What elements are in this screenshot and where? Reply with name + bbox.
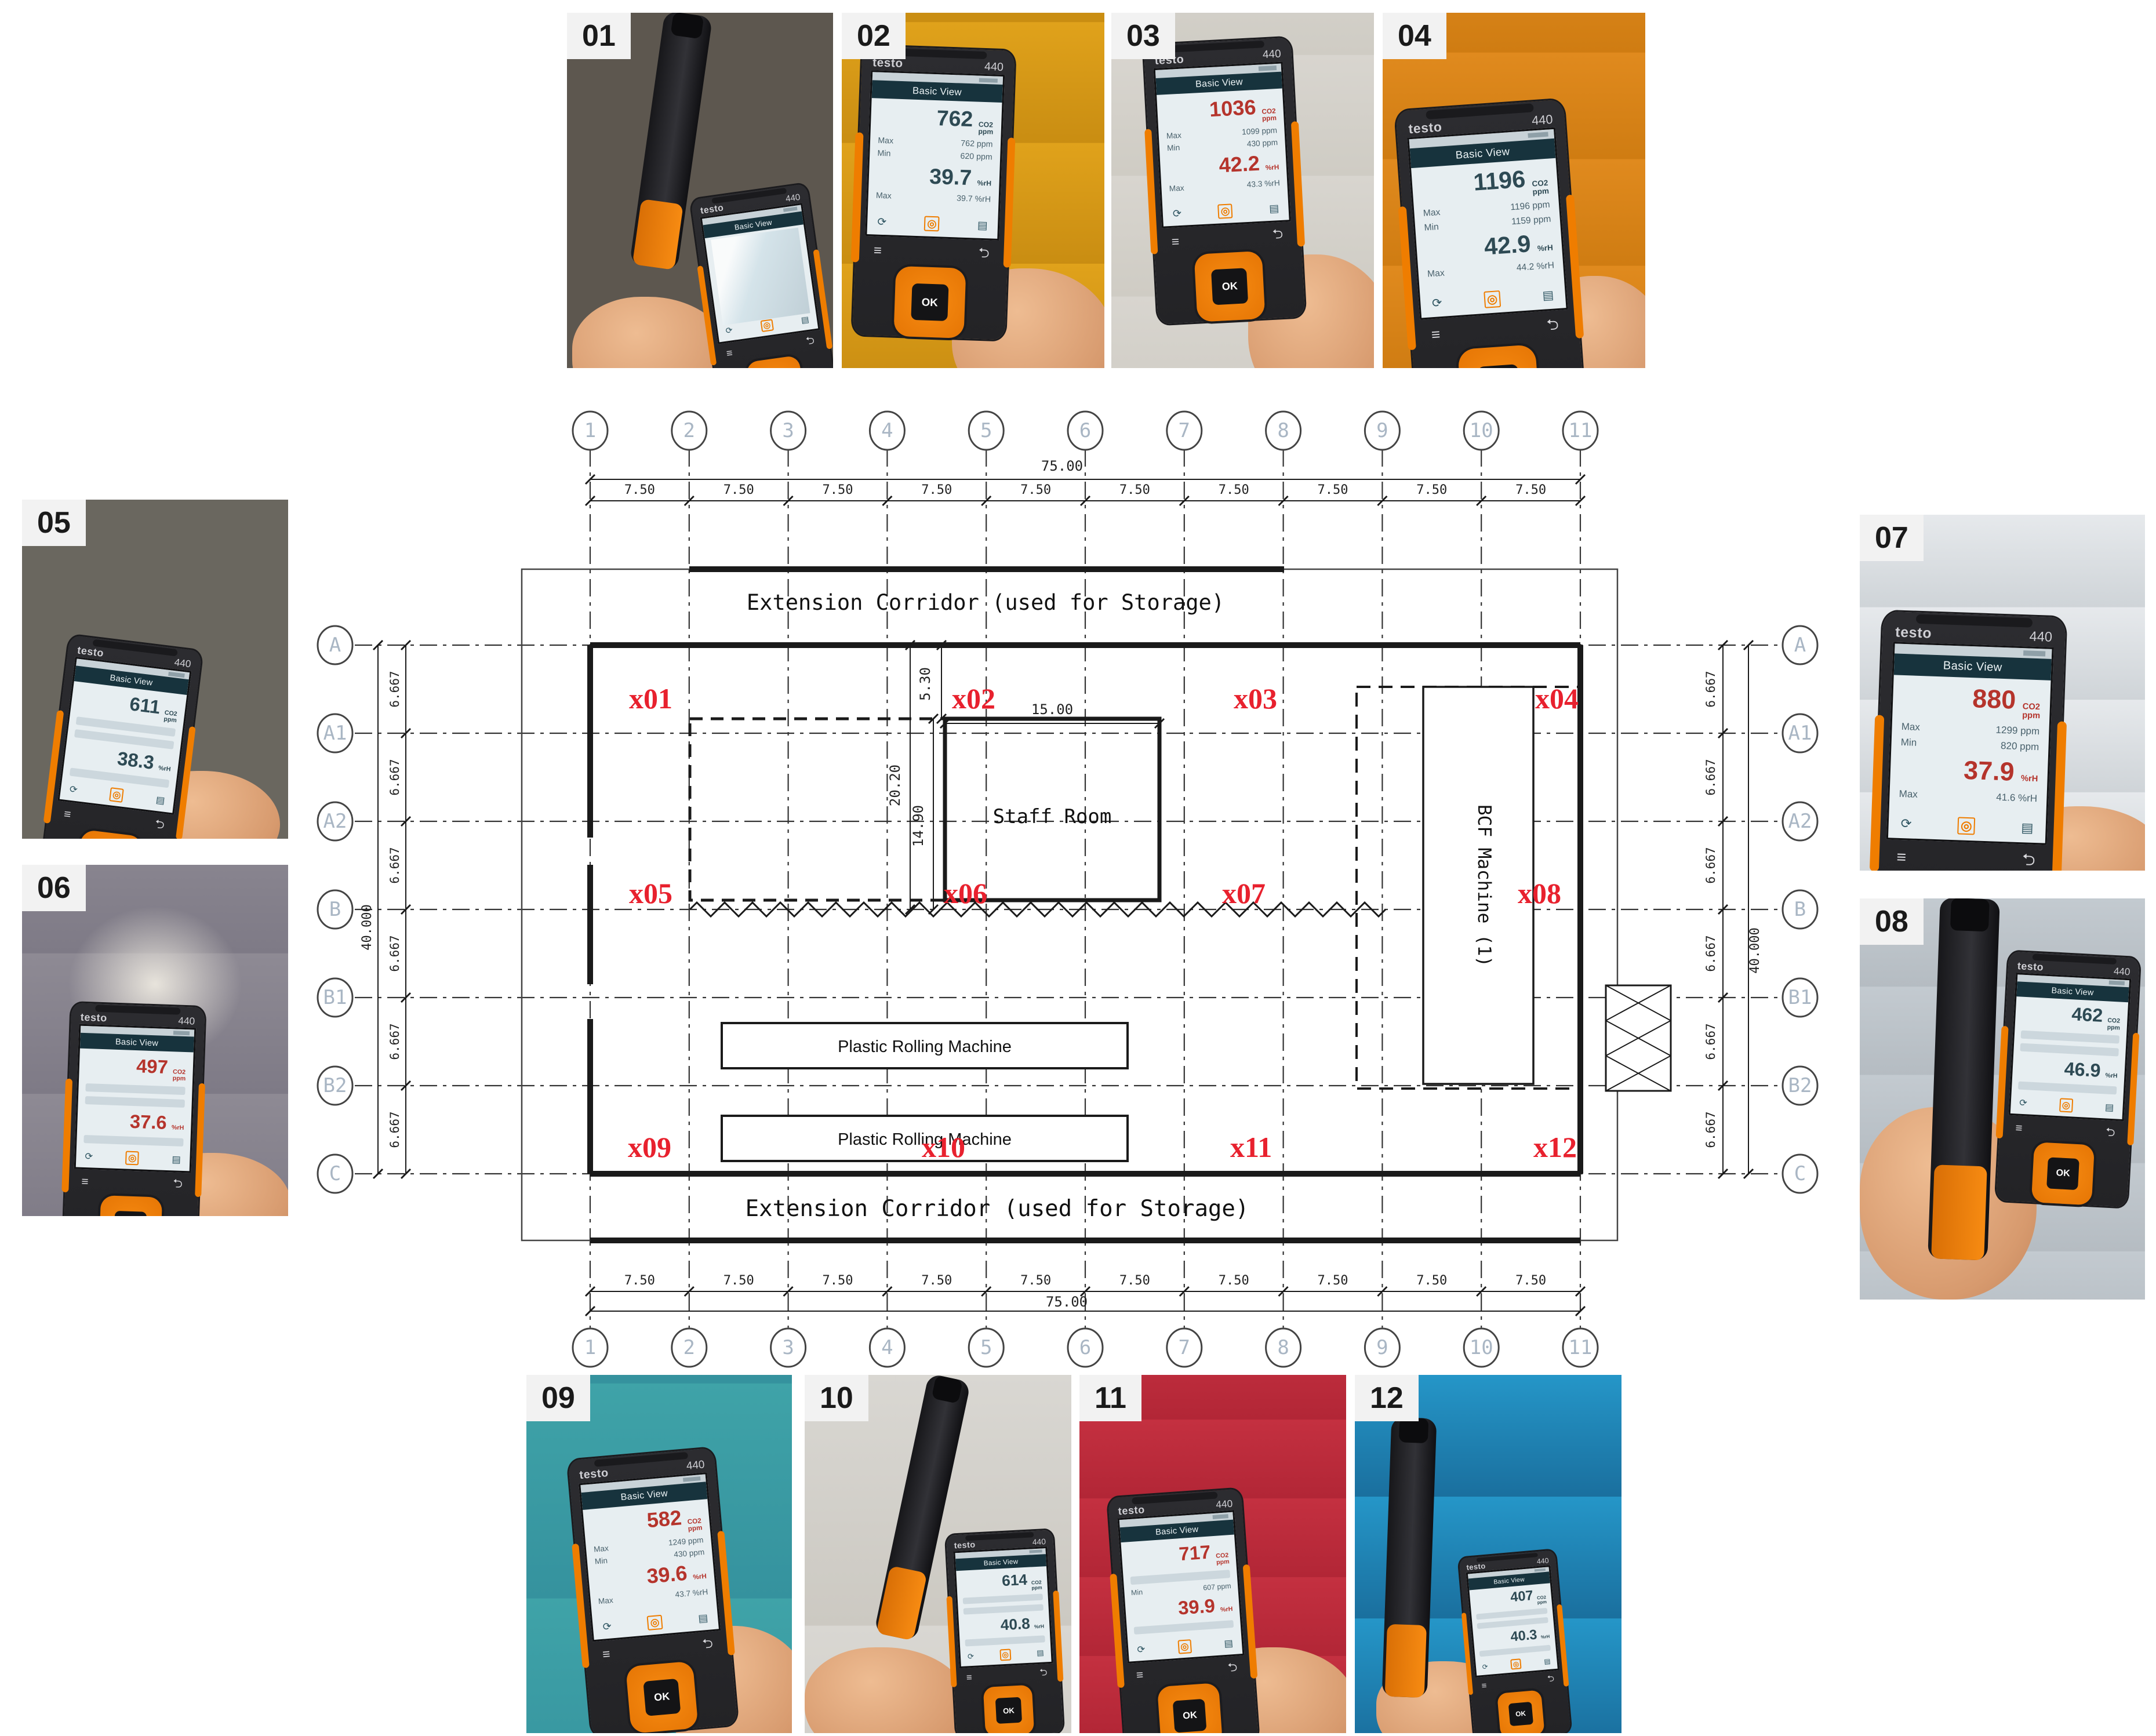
- measurement-point-label: x11: [1230, 1131, 1272, 1163]
- co2-max-value: 1249 ppm: [668, 1535, 704, 1547]
- cycle-icon: ⟳: [968, 1652, 975, 1662]
- column-bubble-top-label: 5: [980, 419, 992, 442]
- dim-staff-depth: 14.90: [910, 805, 926, 847]
- device-brand-label: testo: [1408, 119, 1442, 137]
- testo-440-device: testo440Basic View762CO2 ppmMax762 ppmMi…: [853, 46, 1015, 340]
- min-label: Min: [1900, 737, 1917, 749]
- column-bubble-bottom-label: 5: [980, 1336, 992, 1359]
- co2-min-value: 820 ppm: [2000, 740, 2039, 753]
- column-bubble-bottom-label: 4: [881, 1336, 893, 1359]
- menu-icon: ≡: [2015, 1122, 2023, 1136]
- humidity-max-row: Max39.7 %rH: [876, 191, 991, 205]
- co2-reading: 614CO2 ppm: [962, 1570, 1042, 1595]
- photo-number-label: 04: [1383, 13, 1446, 59]
- device-model-label: 440: [1032, 1537, 1046, 1546]
- ok-button: OK: [1508, 1702, 1533, 1727]
- column-bubble-top-label: 3: [782, 419, 794, 442]
- ok-button: OK: [1173, 1698, 1208, 1733]
- co2-value: 614: [1001, 1571, 1027, 1590]
- site-photo-04: 04 testo440Basic View1196CO2 ppmMax1196 …: [1383, 13, 1645, 368]
- testo-440-device: testo440Basic View407CO2 ppm40.3%rH⟳◎▤≡⮌…: [1459, 1550, 1570, 1733]
- device-brand-label: testo: [81, 1012, 108, 1025]
- menu-icon: ≡: [602, 1646, 611, 1662]
- dim-bay-top: 7.50: [1416, 483, 1447, 497]
- battery-icon: [783, 206, 798, 212]
- site-photo-05: 05 testo440Basic View611CO2 ppm38.3%rH⟳◎…: [22, 500, 288, 839]
- dim-total-top: 75.00: [1041, 458, 1083, 474]
- dpad-pad: OK: [99, 1196, 162, 1216]
- max-label: Max: [1166, 131, 1182, 140]
- column-bubble-top-label: 6: [1079, 419, 1091, 442]
- co2-unit: CO2 ppm: [1216, 1552, 1230, 1566]
- target-icon: ◎: [999, 1648, 1011, 1661]
- screen-body: 497CO2 ppm37.6%rH⟳◎▤: [76, 1049, 194, 1171]
- device-dpad: OK: [1155, 249, 1305, 325]
- photo-number-label: 11: [1079, 1375, 1141, 1421]
- co2-value: 880: [1972, 683, 2016, 715]
- photo-number-label: 01: [567, 13, 631, 59]
- site-photo-11: 11 testo440Basic View717CO2 ppmMin607 pp…: [1079, 1375, 1346, 1733]
- dim-bay-bottom: 7.50: [1318, 1273, 1348, 1288]
- photo-number-label: 08: [1860, 898, 1924, 945]
- device-brand-label: testo: [1118, 1504, 1145, 1518]
- blurred-row: [85, 1097, 185, 1108]
- device-dpad: OK: [63, 1195, 198, 1216]
- column-bubble-bottom-label: 11: [1569, 1336, 1593, 1359]
- max-label: Max: [1901, 721, 1920, 733]
- back-icon: ⮌: [1546, 314, 1559, 340]
- dim-row-left: 6.667: [388, 1111, 402, 1148]
- measurement-point-label: x05: [629, 877, 672, 909]
- device-model-label: 440: [2029, 629, 2052, 646]
- humidity-max-value: 44.2 %rH: [1516, 261, 1554, 274]
- device-screen: Basic View497CO2 ppm37.6%rH⟳◎▤: [74, 1024, 196, 1173]
- menu-icon: ≡: [1171, 234, 1180, 250]
- co2-max-row: Max762 ppm: [878, 136, 993, 150]
- dim-row-left: 6.667: [388, 1023, 402, 1060]
- co2-reading: 717CO2 ppm: [1128, 1540, 1230, 1572]
- co2-value: 611: [129, 693, 162, 718]
- min-label: Min: [1131, 1588, 1143, 1596]
- blurred-row: [1134, 1619, 1234, 1635]
- min-label: Min: [1167, 143, 1180, 152]
- cycle-icon: ⟳: [602, 1620, 612, 1633]
- target-icon: ◎: [2059, 1098, 2073, 1112]
- co2-value: 407: [1510, 1588, 1534, 1605]
- co2-min-value: 1159 ppm: [1511, 214, 1551, 228]
- site-photo-02: 02 testo440Basic View762CO2 ppmMax762 pp…: [842, 13, 1104, 368]
- site-photo-10: 10 testo440Basic View614CO2 ppm40.8%rH⟳◎…: [805, 1375, 1071, 1733]
- co2-unit: CO2 ppm: [173, 1069, 186, 1082]
- save-icon: ▤: [2020, 820, 2033, 836]
- menu-icon: ≡: [63, 807, 72, 822]
- device-model-label: 440: [174, 656, 192, 670]
- dim-row-right: 6.667: [1704, 759, 1718, 795]
- device-brand-label: testo: [1895, 624, 1932, 642]
- min-label: Min: [877, 149, 890, 159]
- dpad-pad: OK: [1194, 251, 1266, 322]
- row-bubble-right-label: A2: [1788, 810, 1812, 833]
- max-label: Max: [593, 1544, 609, 1553]
- target-icon: ◎: [1957, 817, 1975, 835]
- row-bubble-left-label: A1: [323, 722, 347, 745]
- photo-number-label: 03: [1111, 13, 1175, 59]
- target-icon: ◎: [1511, 1658, 1522, 1669]
- device-screen: Basic View880CO2 ppmMax1299 ppmMin820 pp…: [1886, 642, 2053, 845]
- back-icon: ⮌: [1039, 1665, 1048, 1682]
- save-icon: ▤: [1037, 1648, 1044, 1658]
- blurred-row: [963, 1594, 1043, 1604]
- column-bubble-bottom-label: 7: [1179, 1336, 1190, 1359]
- battery-icon: [2023, 650, 2045, 657]
- testo-440-device: testo440Basic View717CO2 ppmMin607 ppm39…: [1108, 1488, 1259, 1733]
- site-photo-06: 06 testo440Basic View497CO2 ppm37.6%rH⟳◎…: [22, 865, 288, 1216]
- menu-icon: ≡: [1481, 1681, 1487, 1691]
- humidity-reading: 40.8%rH: [964, 1614, 1045, 1636]
- co2-value: 497: [136, 1055, 169, 1078]
- ok-button: OK: [995, 1697, 1022, 1724]
- target-icon: ◎: [924, 216, 940, 232]
- max-label: Max: [1423, 208, 1441, 219]
- humidity-unit: %rH: [1220, 1606, 1233, 1614]
- humidity-unit: %rH: [1541, 1635, 1550, 1640]
- target-icon: ◎: [1484, 290, 1501, 308]
- battery-icon: [979, 78, 998, 83]
- co2-max-value: 1099 ppm: [1242, 126, 1278, 136]
- back-icon: ⮌: [2022, 847, 2035, 871]
- device-brand-label: testo: [579, 1466, 609, 1482]
- row-bubble-right-label: A1: [1788, 722, 1812, 745]
- min-label: Min: [1424, 222, 1439, 234]
- column-bubble-bottom-label: 9: [1376, 1336, 1388, 1359]
- co2-unit: CO2 ppm: [163, 709, 178, 724]
- blurred-row: [2018, 1082, 2117, 1094]
- max-label: Max: [1899, 788, 1918, 800]
- ok-button: OK: [114, 1211, 147, 1216]
- device-dpad: OK: [586, 1657, 737, 1733]
- back-icon: ⮌: [805, 333, 816, 351]
- blurred-row: [85, 1083, 186, 1095]
- cycle-icon: ⟳: [1431, 296, 1442, 311]
- testo-440-device: testo440Basic View497CO2 ppm37.6%rH⟳◎▤≡⮌…: [63, 1003, 205, 1216]
- row-bubble-left-label: B: [329, 898, 341, 921]
- menu-icon: ≡: [1896, 847, 1906, 867]
- row-bubble-right-label: C: [1794, 1162, 1806, 1185]
- row-bubble-right-label: B2: [1788, 1074, 1812, 1097]
- save-icon: ▤: [172, 1154, 181, 1166]
- save-icon: ▤: [1542, 287, 1554, 303]
- dim-bay-top: 7.50: [823, 483, 853, 497]
- humidity-reading: 42.9%rH: [1425, 229, 1554, 265]
- dashed-room: [690, 719, 945, 900]
- measurement-point-label: x07: [1222, 877, 1266, 909]
- site-photo-03: 03 testo440Basic View1036CO2 ppmMax1099 …: [1111, 13, 1374, 368]
- co2-reading: 880CO2 ppm: [1902, 681, 2041, 721]
- column-bubble-top-label: 2: [683, 419, 695, 442]
- humidity-unit: %rH: [1034, 1624, 1045, 1630]
- humidity-value: 39.6: [646, 1562, 688, 1589]
- max-label: Max: [598, 1596, 613, 1606]
- device-screen: Basic View582CO2 ppmMax1249 ppmMin430 pp…: [579, 1472, 721, 1642]
- co2-unit: CO2 ppm: [1537, 1595, 1547, 1606]
- device-screen: Basic View614CO2 ppm40.8%rH⟳◎▤: [953, 1546, 1053, 1668]
- co2-value: 462: [2071, 1004, 2104, 1027]
- co2-value: 717: [1179, 1541, 1212, 1565]
- cycle-icon: ⟳: [85, 1151, 93, 1163]
- dim-bay-bottom: 7.50: [1119, 1273, 1150, 1288]
- screen-icon-row: ⟳◎▤: [1428, 285, 1557, 315]
- site-photo-09: 09 testo440Basic View582CO2 ppmMax1249 p…: [526, 1375, 792, 1733]
- menu-icon: ≡: [966, 1672, 972, 1683]
- co2-reading: 462CO2 ppm: [2022, 1001, 2121, 1031]
- screen-icon-row: ⟳◎▤: [82, 1149, 183, 1169]
- testo-440-device: testo440Basic View1196CO2 ppmMax1196 ppm…: [1395, 100, 1586, 368]
- column-bubble-top-label: 11: [1569, 419, 1593, 442]
- dim-bay-bottom: 7.50: [1219, 1273, 1249, 1288]
- dpad-pad: OK: [626, 1661, 699, 1733]
- co2-unit: CO2 ppm: [1031, 1580, 1042, 1591]
- dpad-pad: OK: [1157, 1683, 1223, 1733]
- save-icon: ▤: [1269, 202, 1279, 215]
- testo-440-device: testo440Basic View614CO2 ppm40.8%rH⟳◎▤≡⮌…: [946, 1530, 1063, 1733]
- humidity-unit: %rH: [2020, 774, 2038, 784]
- battery-icon: [1259, 65, 1277, 71]
- measurement-point-label: x04: [1535, 682, 1579, 715]
- ok-button: OK: [1211, 268, 1248, 305]
- screen-icon-row: ⟳◎▤: [1170, 200, 1282, 224]
- target-icon: ◎: [760, 319, 773, 332]
- ok-button: OK: [643, 1678, 681, 1716]
- humidity-unit: %rH: [158, 765, 172, 773]
- measurement-point-label: x08: [1518, 877, 1561, 909]
- co2-max-value: 1299 ppm: [1995, 724, 2039, 737]
- humidity-value: 42.9: [1483, 231, 1531, 261]
- photo-number-label: 06: [22, 865, 86, 911]
- photo-number-label: 09: [526, 1375, 590, 1421]
- device-dpad: OK: [1471, 1688, 1571, 1733]
- dim-bay-bottom: 7.50: [723, 1273, 754, 1288]
- max-label: Max: [1169, 184, 1184, 193]
- blurred-row: [964, 1604, 1044, 1614]
- screen-icon-row: ⟳◎▤: [875, 213, 990, 236]
- screen-icon-row: ⟳◎▤: [2017, 1095, 2116, 1117]
- co2-probe: [1928, 898, 2000, 1260]
- menu-icon: ≡: [874, 243, 882, 259]
- target-icon: ◎: [647, 1614, 663, 1630]
- dim-bay-top: 7.50: [921, 483, 952, 497]
- staff-room-label: Staff Room: [993, 805, 1112, 828]
- menu-icon: ≡: [81, 1175, 89, 1189]
- screen-icon-row: ⟳◎▤: [1481, 1655, 1553, 1673]
- measurement-point-label: x06: [944, 877, 987, 909]
- photo-number-label: 02: [842, 13, 906, 59]
- photo-number-label: 05: [22, 500, 86, 546]
- humidity-reading: 39.9%rH: [1132, 1593, 1233, 1622]
- screen-glare: [711, 227, 809, 325]
- device-screen: Basic View762CO2 ppmMax762 ppmMin620 ppm…: [865, 71, 1005, 241]
- device-model-label: 440: [785, 192, 801, 204]
- photo-number-label: 10: [805, 1375, 868, 1421]
- save-icon: ▤: [697, 1611, 708, 1624]
- humidity-unit: %rH: [693, 1573, 707, 1581]
- device-screen: Basic View462CO2 ppm46.9%rH⟳◎▤: [2008, 973, 2131, 1122]
- screen-body: ⟳◎▤: [705, 224, 818, 342]
- humidity-max-value: 39.7 %rH: [957, 194, 991, 205]
- column-bubble-bottom-label: 3: [782, 1336, 794, 1359]
- battery-icon: [1528, 132, 1548, 139]
- cycle-icon: ⟳: [1900, 816, 1912, 832]
- co2-unit: CO2 ppm: [1532, 179, 1549, 196]
- screen-body: 462CO2 ppm46.9%rH⟳◎▤: [2010, 996, 2128, 1119]
- humidity-max-value: 43.3 %rH: [1246, 179, 1280, 189]
- row-bubble-right-label: A: [1794, 634, 1806, 657]
- cycle-icon: ⟳: [1482, 1662, 1488, 1671]
- dpad-pad: OK: [1497, 1690, 1545, 1733]
- cycle-icon: ⟳: [69, 783, 78, 796]
- ok-button: OK: [911, 283, 948, 321]
- device-screen: Basic View⟳◎▤: [700, 203, 820, 344]
- save-icon: ▤: [2105, 1102, 2114, 1114]
- device-screen: Basic View407CO2 ppm40.3%rH⟳◎▤: [1466, 1565, 1559, 1677]
- photo-number-label: 12: [1355, 1375, 1419, 1421]
- blurred-row: [83, 1136, 184, 1147]
- dim-bay-bottom: 7.50: [624, 1273, 655, 1288]
- dim-total-bottom: 75.00: [1046, 1294, 1088, 1310]
- device-screen: Basic View611CO2 ppm38.3%rH⟳◎▤: [57, 657, 191, 815]
- device-screen: Basic View1196CO2 ppmMax1196 ppmMin1159 …: [1408, 128, 1568, 319]
- humidity-value: 46.9: [2064, 1058, 2102, 1081]
- humidity-reading: 37.9%rH: [1899, 753, 2038, 788]
- humidity-value: 39.9: [1177, 1595, 1216, 1619]
- column-bubble-bottom-label: 1: [584, 1336, 596, 1359]
- co2-unit: CO2 ppm: [2107, 1018, 2120, 1031]
- humidity-max-row: Max43.3 %rH: [1169, 179, 1280, 193]
- column-bubble-top-label: 10: [1470, 419, 1493, 442]
- menu-icon: ≡: [1431, 326, 1441, 344]
- battery-icon: [1534, 1568, 1546, 1573]
- menu-icon: ≡: [725, 347, 733, 359]
- co2-reading: 497CO2 ppm: [86, 1053, 187, 1082]
- dim-bay-bottom: 7.50: [1020, 1273, 1051, 1288]
- device-dpad: OK: [1996, 1140, 2130, 1207]
- humidity-unit: %rH: [2105, 1072, 2118, 1079]
- row-bubble-left-label: A2: [323, 810, 347, 833]
- device-screen: Basic View1036CO2 ppmMax1099 ppmMin430 p…: [1154, 62, 1291, 228]
- back-icon: ⮌: [1272, 225, 1284, 248]
- bcf-machine-label: BCF Machine (1): [1474, 805, 1495, 967]
- dim-bay-bottom: 7.50: [1416, 1273, 1447, 1288]
- back-icon: ⮌: [154, 816, 166, 837]
- device-dpad: OK: [954, 1683, 1063, 1733]
- photo-number-label: 07: [1860, 515, 1924, 561]
- battery-icon: [169, 672, 185, 678]
- column-bubble-top-label: 1: [584, 419, 596, 442]
- co2-reading: 582CO2 ppm: [590, 1504, 702, 1541]
- humidity-max-value: 43.7 %rH: [675, 1587, 708, 1599]
- device-brand-label: testo: [2017, 960, 2044, 973]
- target-icon: ◎: [1217, 203, 1232, 219]
- device-screen: Basic View717CO2 ppmMin607 ppm39.9%rH⟳◎▤: [1118, 1511, 1245, 1664]
- humidity-reading: 39.6%rH: [595, 1560, 707, 1593]
- column-bubble-bottom-label: 6: [1079, 1336, 1091, 1359]
- site-photo-01: 01 testo440Basic View⟳◎▤≡⮌OK: [567, 13, 833, 368]
- measurement-point-label: x09: [628, 1131, 671, 1163]
- co2-reading: 407CO2 ppm: [1474, 1586, 1547, 1611]
- dim-bay-top: 7.50: [1119, 483, 1150, 497]
- dim-row-left: 6.667: [388, 671, 402, 707]
- testo-440-device: testo440Basic View582CO2 ppmMax1249 ppmM…: [568, 1448, 737, 1733]
- back-icon: ⮌: [978, 243, 990, 267]
- co2-unit: CO2 ppm: [2022, 703, 2040, 721]
- dim-bay-top: 7.50: [1318, 483, 1348, 497]
- co2-min-value: 430 ppm: [673, 1547, 704, 1559]
- co2-min-row: Min820 ppm: [1900, 737, 2039, 753]
- dpad-pad: OK: [893, 266, 966, 339]
- humidity-reading: 46.9%rH: [2019, 1056, 2118, 1082]
- battery-icon: [683, 1476, 701, 1482]
- device-brand-label: testo: [954, 1541, 976, 1551]
- row-bubble-right-label: B1: [1788, 986, 1812, 1009]
- back-icon: ⮌: [1227, 1658, 1238, 1679]
- target-icon: ◎: [1177, 1639, 1192, 1654]
- save-icon: ▤: [155, 794, 166, 807]
- dim-row-left: 6.667: [388, 847, 402, 883]
- site-photo-07: 07 testo440Basic View880CO2 ppmMax1299 p…: [1860, 515, 2145, 871]
- screen-body: 614CO2 ppm40.8%rH⟳◎▤: [956, 1566, 1051, 1666]
- screen-body: 1036CO2 ppmMax1099 ppmMin430 ppm42.2%rHM…: [1157, 89, 1289, 227]
- cycle-icon: ⟳: [877, 216, 886, 229]
- min-label: Min: [594, 1556, 608, 1566]
- humidity-reading: 40.3%rH: [1478, 1626, 1550, 1648]
- screen-body: 762CO2 ppmMax762 ppmMin620 ppm39.7%rHMax…: [867, 99, 1002, 239]
- measurement-point-label: x03: [1234, 682, 1277, 715]
- target-icon: ◎: [125, 1151, 139, 1166]
- dim-staff-width: 15.00: [1031, 701, 1073, 718]
- dim-row-left: 6.667: [388, 935, 402, 971]
- device-model-label: 440: [1531, 112, 1553, 128]
- screen-body: 1196CO2 ppmMax1196 ppmMin1159 ppm42.9%rH…: [1411, 158, 1566, 318]
- target-icon: ◎: [109, 787, 124, 803]
- co2-max-row: Max1299 ppm: [1901, 721, 2039, 737]
- dpad-pad: OK: [983, 1685, 1034, 1733]
- dim-row-right: 6.667: [1704, 1023, 1718, 1060]
- save-icon: ▤: [1544, 1657, 1551, 1665]
- column-bubble-bottom-label: 8: [1277, 1336, 1289, 1359]
- testo-440-device: testo440Basic View1036CO2 ppmMax1099 ppm…: [1143, 38, 1305, 325]
- humidity-value: 38.3: [116, 747, 155, 773]
- humidity-value: 42.2: [1218, 151, 1260, 178]
- dim-bay-top: 7.50: [1515, 483, 1546, 497]
- device-model-label: 440: [686, 1458, 705, 1473]
- co2-min-value: 620 ppm: [960, 152, 992, 162]
- device-model-label: 440: [1216, 1498, 1233, 1511]
- measurement-point-label: x02: [952, 682, 995, 715]
- humidity-unit: %rH: [977, 180, 992, 188]
- ok-button: OK: [2046, 1157, 2079, 1190]
- back-icon: ⮌: [701, 1634, 714, 1657]
- corridor-bottom-label: Extension Corridor (used for Storage): [746, 1196, 1249, 1222]
- testo-440-device: testo440Basic View462CO2 ppm46.9%rH⟳◎▤≡⮌…: [1996, 951, 2140, 1207]
- row-bubble-left-label: C: [329, 1162, 341, 1185]
- dim-bay-bottom: 7.50: [823, 1273, 853, 1288]
- screen-body: 407CO2 ppm40.3%rH⟳◎▤: [1470, 1583, 1558, 1676]
- humidity-max-value: 41.6 %rH: [1995, 791, 2037, 804]
- co2-reading: 762CO2 ppm: [878, 103, 994, 136]
- battery-icon: [2109, 981, 2125, 985]
- testo-440-device: testo440Basic View880CO2 ppmMax1299 ppmM…: [1871, 612, 2066, 871]
- corridor-top-label: Extension Corridor (used for Storage): [747, 590, 1224, 615]
- humidity-unit: %rH: [1265, 164, 1279, 172]
